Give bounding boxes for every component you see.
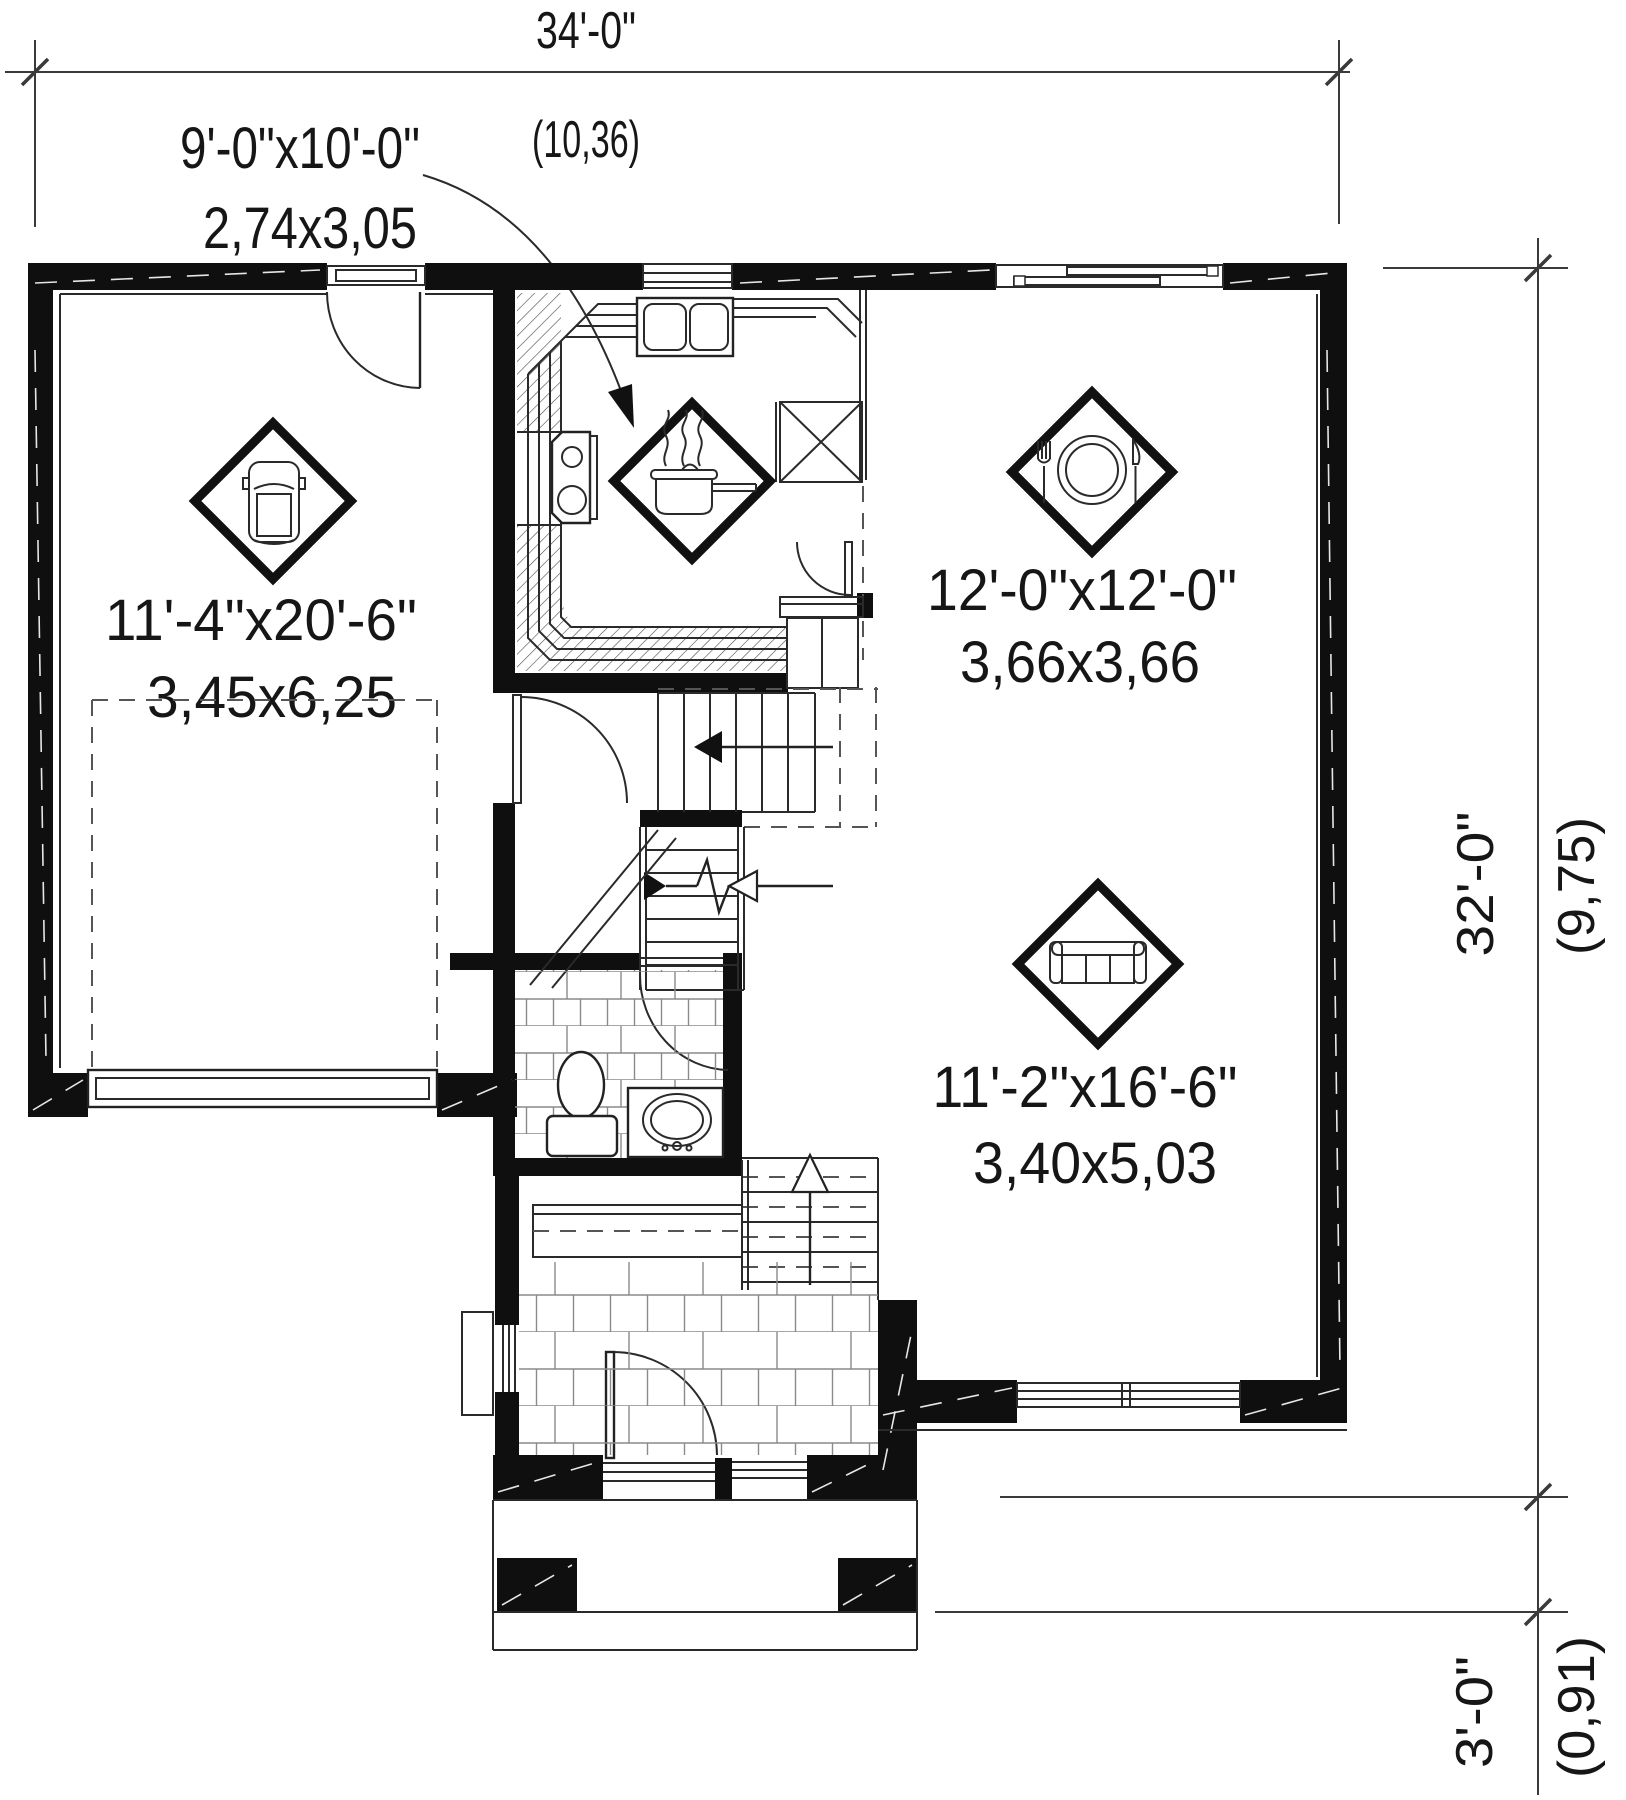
entry-up-arrow-icon [792,1155,828,1192]
staircase-up [658,687,878,827]
garage-back-door [327,266,425,388]
stair-closet [780,597,863,688]
coat-closet [533,1205,742,1257]
kitchen-size-imperial: 9'-0"x10'-0" [180,116,420,181]
floor-plan-drawing: 34'-0" (10,36) 32'-0" (9,75) 3'-0" (0,91… [0,0,1626,1800]
stair-up-arrow-icon [694,731,722,763]
dim-depth-imperial: 32'-0" [1447,812,1505,957]
garage-icon-diamond [195,423,351,579]
kitchen-dining-door [797,542,852,595]
foyer-tile-floor [519,1262,878,1455]
dim-porch-metric: (0,91) [1548,1636,1606,1778]
kitchen-icon-diamond [614,403,770,559]
dining-size-metric: 3,66x3,66 [960,630,1200,695]
kitchen-size-metric: 2,74x3,05 [203,196,417,261]
garage-entry-door [513,695,627,803]
dining-size-imperial: 12'-0"x12'-0" [927,558,1237,623]
dining-icon-diamond [1012,392,1172,552]
bathroom-vanity [628,1088,723,1157]
dimension-top: 34'-0" (10,36) [5,2,1352,227]
living-window [1017,1383,1240,1407]
stove [552,432,597,523]
dim-depth-metric: (9,75) [1548,817,1606,955]
dim-porch-imperial: 3'-0" [1446,1656,1504,1768]
garage-size-metric: 3,45x6,25 [147,665,397,730]
dining-window [996,265,1223,287]
refrigerator-space [776,402,862,482]
floor-plan-sheet: 34'-0" (10,36) 32'-0" (9,75) 3'-0" (0,91… [0,0,1626,1800]
dim-width-metric: (10,36) [532,111,640,169]
kitchen-window [643,264,732,288]
bathroom [515,970,723,1158]
garage-features [92,700,437,1068]
kitchen-sink [637,298,733,356]
garage-door [88,1070,437,1107]
dim-width-imperial: 34'-0" [536,2,636,60]
foyer [519,1205,878,1455]
living-size-imperial: 11'-2"x16'-6" [933,1055,1238,1120]
living-icon-diamond [1018,884,1178,1044]
living-size-metric: 3,40x5,03 [973,1131,1217,1196]
kitchen-leader-arrow-icon [608,384,634,428]
garage-size-imperial: 11'-4"x20'-6" [105,588,417,653]
entry-sidelight [732,1462,807,1478]
